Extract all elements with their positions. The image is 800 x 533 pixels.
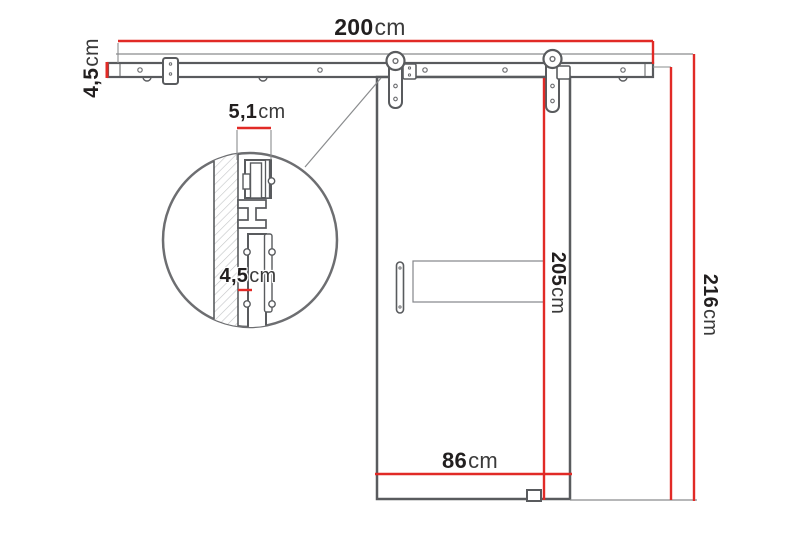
bolt-head <box>244 301 250 307</box>
door-thickness-value: 4,5 <box>220 265 249 287</box>
wheel-hub <box>550 57 555 62</box>
detail-callout <box>163 148 337 334</box>
strap-hole <box>394 84 398 88</box>
bolt-head <box>269 249 275 255</box>
wall-clearance-unit: cm <box>258 101 285 123</box>
bolt-head <box>269 301 275 307</box>
bolt-head <box>268 178 274 184</box>
label-rail-width: 200cm <box>320 16 420 39</box>
rail-bar <box>108 63 653 77</box>
callout-leader-line <box>305 78 381 167</box>
label-door-thickness: 4,5cm <box>211 266 285 286</box>
label-door-width: 86cm <box>430 450 510 472</box>
strap-hole <box>394 97 398 101</box>
total-height-value: 216 <box>699 274 721 308</box>
door-height-value: 205 <box>547 252 569 286</box>
rail-screw <box>621 68 625 72</box>
rail-screw <box>423 68 427 72</box>
sliding-door-dimension-diagram: 200cm 4,5cm 5,1cm 4,5cm 205cm 86cm 216cm <box>0 0 800 533</box>
total-height-unit: cm <box>699 309 721 336</box>
hanger-side-plate <box>403 64 416 79</box>
floor-guide <box>527 490 541 501</box>
door-handle <box>397 262 404 313</box>
rail-width-value: 200 <box>334 14 373 40</box>
label-height-below-rail <box>670 264 694 346</box>
door-thickness-unit: cm <box>249 265 276 287</box>
label-rail-height: 4,5cm <box>81 28 105 108</box>
rail-mount-tab <box>243 174 250 189</box>
wall-section-hatch <box>214 148 238 334</box>
door-width-unit: cm <box>468 448 498 473</box>
door-width-value: 86 <box>442 448 467 473</box>
wheel-profile <box>251 163 262 198</box>
strap-hole <box>551 99 555 103</box>
wall-clearance-value: 5,1 <box>229 101 258 123</box>
rail-height-unit: cm <box>80 38 103 67</box>
rail-screw <box>318 68 322 72</box>
rail-screw <box>503 68 507 72</box>
rail-height-value: 4,5 <box>80 68 103 98</box>
door-height-unit: cm <box>547 287 569 314</box>
door-panel <box>377 77 697 501</box>
rail-wall-bracket <box>163 58 178 84</box>
strap-hole <box>551 84 555 88</box>
label-total-height: 216cm <box>696 264 720 346</box>
door <box>377 77 570 499</box>
label-wall-clearance: 5,1cm <box>220 102 294 122</box>
wheel-hub <box>393 59 398 64</box>
label-door-height: 205cm <box>544 243 568 323</box>
rail-width-unit: cm <box>375 14 406 40</box>
bolt-head <box>244 249 250 255</box>
rail-screw <box>138 68 142 72</box>
hanger-side-plate <box>557 66 570 79</box>
